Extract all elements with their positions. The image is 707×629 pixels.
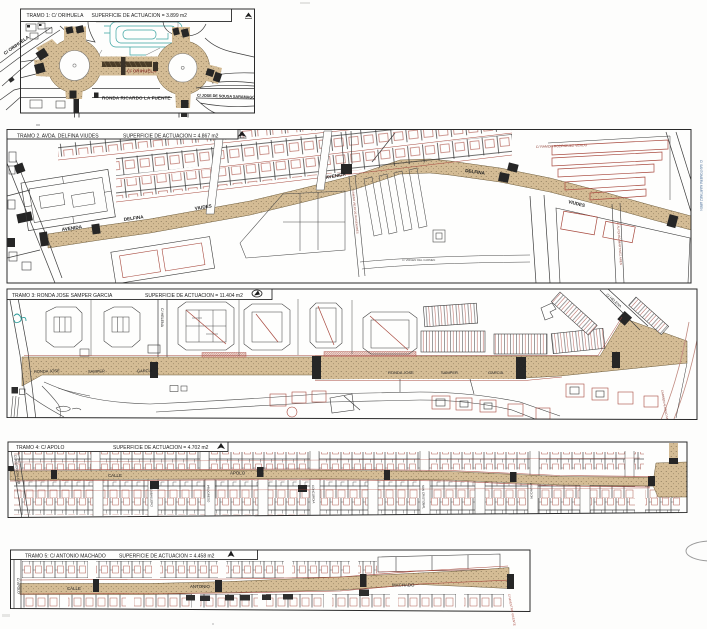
svg-text:SAMPER: SAMPER xyxy=(441,370,458,375)
svg-text:TRAMO 5: C/ ANTONIO MACHADO: TRAMO 5: C/ ANTONIO MACHADO xyxy=(25,553,106,559)
svg-text:CALLE: CALLE xyxy=(67,586,81,591)
svg-text:SUPERFICIE DE ACTUACION = 3.89: SUPERFICIE DE ACTUACION = 3.899 m2 xyxy=(92,13,188,19)
svg-text:CALLE: CALLE xyxy=(108,473,122,478)
svg-text:SUPERFICIE DE ACTUACION = 4.70: SUPERFICIE DE ACTUACION = 4.702 m2 xyxy=(113,445,209,451)
svg-text:ANTONIO: ANTONIO xyxy=(190,584,211,589)
svg-text:TRAMO 2. AVDA. DELFINA VIUDES: TRAMO 2. AVDA. DELFINA VIUDES xyxy=(17,133,99,139)
svg-text:MACHADO: MACHADO xyxy=(392,583,415,588)
svg-text:SUPERFICIE DE ACTUACION = 4.86: SUPERFICIE DE ACTUACION = 4.867 m2 xyxy=(123,133,219,139)
svg-text:C/ VIRGEN DEL CARMEN: C/ VIRGEN DEL CARMEN xyxy=(402,258,435,262)
svg-text:SAN CRISTOBAL: SAN CRISTOBAL xyxy=(421,485,426,509)
svg-text:PROGRESO: PROGRESO xyxy=(206,485,211,503)
svg-text:SUPERFICIE DE ACTUACION = 11.4: SUPERFICIE DE ACTUACION = 11.404 m2 xyxy=(145,293,243,299)
svg-text:TRAMO 4: C/ APOLO: TRAMO 4: C/ APOLO xyxy=(16,445,64,451)
svg-text:SAMPER: SAMPER xyxy=(88,368,105,374)
svg-text:C/ SANTOMERA MARTINEZ AREN: C/ SANTOMERA MARTINEZ AREN xyxy=(699,160,703,211)
svg-text:C/ HELENA: C/ HELENA xyxy=(160,308,164,328)
svg-text:C/ ORIHUELA: C/ ORIHUELA xyxy=(127,69,156,74)
svg-text:GARCIA: GARCIA xyxy=(137,368,153,374)
svg-text:C/ CABALLERO: C/ CABALLERO xyxy=(149,485,154,508)
svg-text:TRAMO 1: C/ ORIHUELA: TRAMO 1: C/ ORIHUELA xyxy=(27,13,85,19)
svg-text:RONDA JOSE: RONDA JOSE xyxy=(388,370,414,375)
svg-text:SUPERFICIE DE ACTUACION = 4.45: SUPERFICIE DE ACTUACION = 4.458 m2 xyxy=(119,553,215,559)
svg-text:GARCIA: GARCIA xyxy=(488,370,504,375)
svg-text:APOLO: APOLO xyxy=(230,471,246,476)
svg-text:RONDA JOSE: RONDA JOSE xyxy=(34,368,60,374)
svg-text:RONDA RICARDO LA FUENTE: RONDA RICARDO LA FUENTE xyxy=(102,95,171,100)
svg-text:TRAMO 3: RONDA JOSE SAMPER GAR: TRAMO 3: RONDA JOSE SAMPER GARCIA xyxy=(12,293,113,299)
svg-text:C/ APOLO: C/ APOLO xyxy=(16,578,21,594)
svg-text:CONCORDIA: CONCORDIA xyxy=(311,485,316,503)
svg-text:ASUNCION: ASUNCION xyxy=(529,483,534,499)
